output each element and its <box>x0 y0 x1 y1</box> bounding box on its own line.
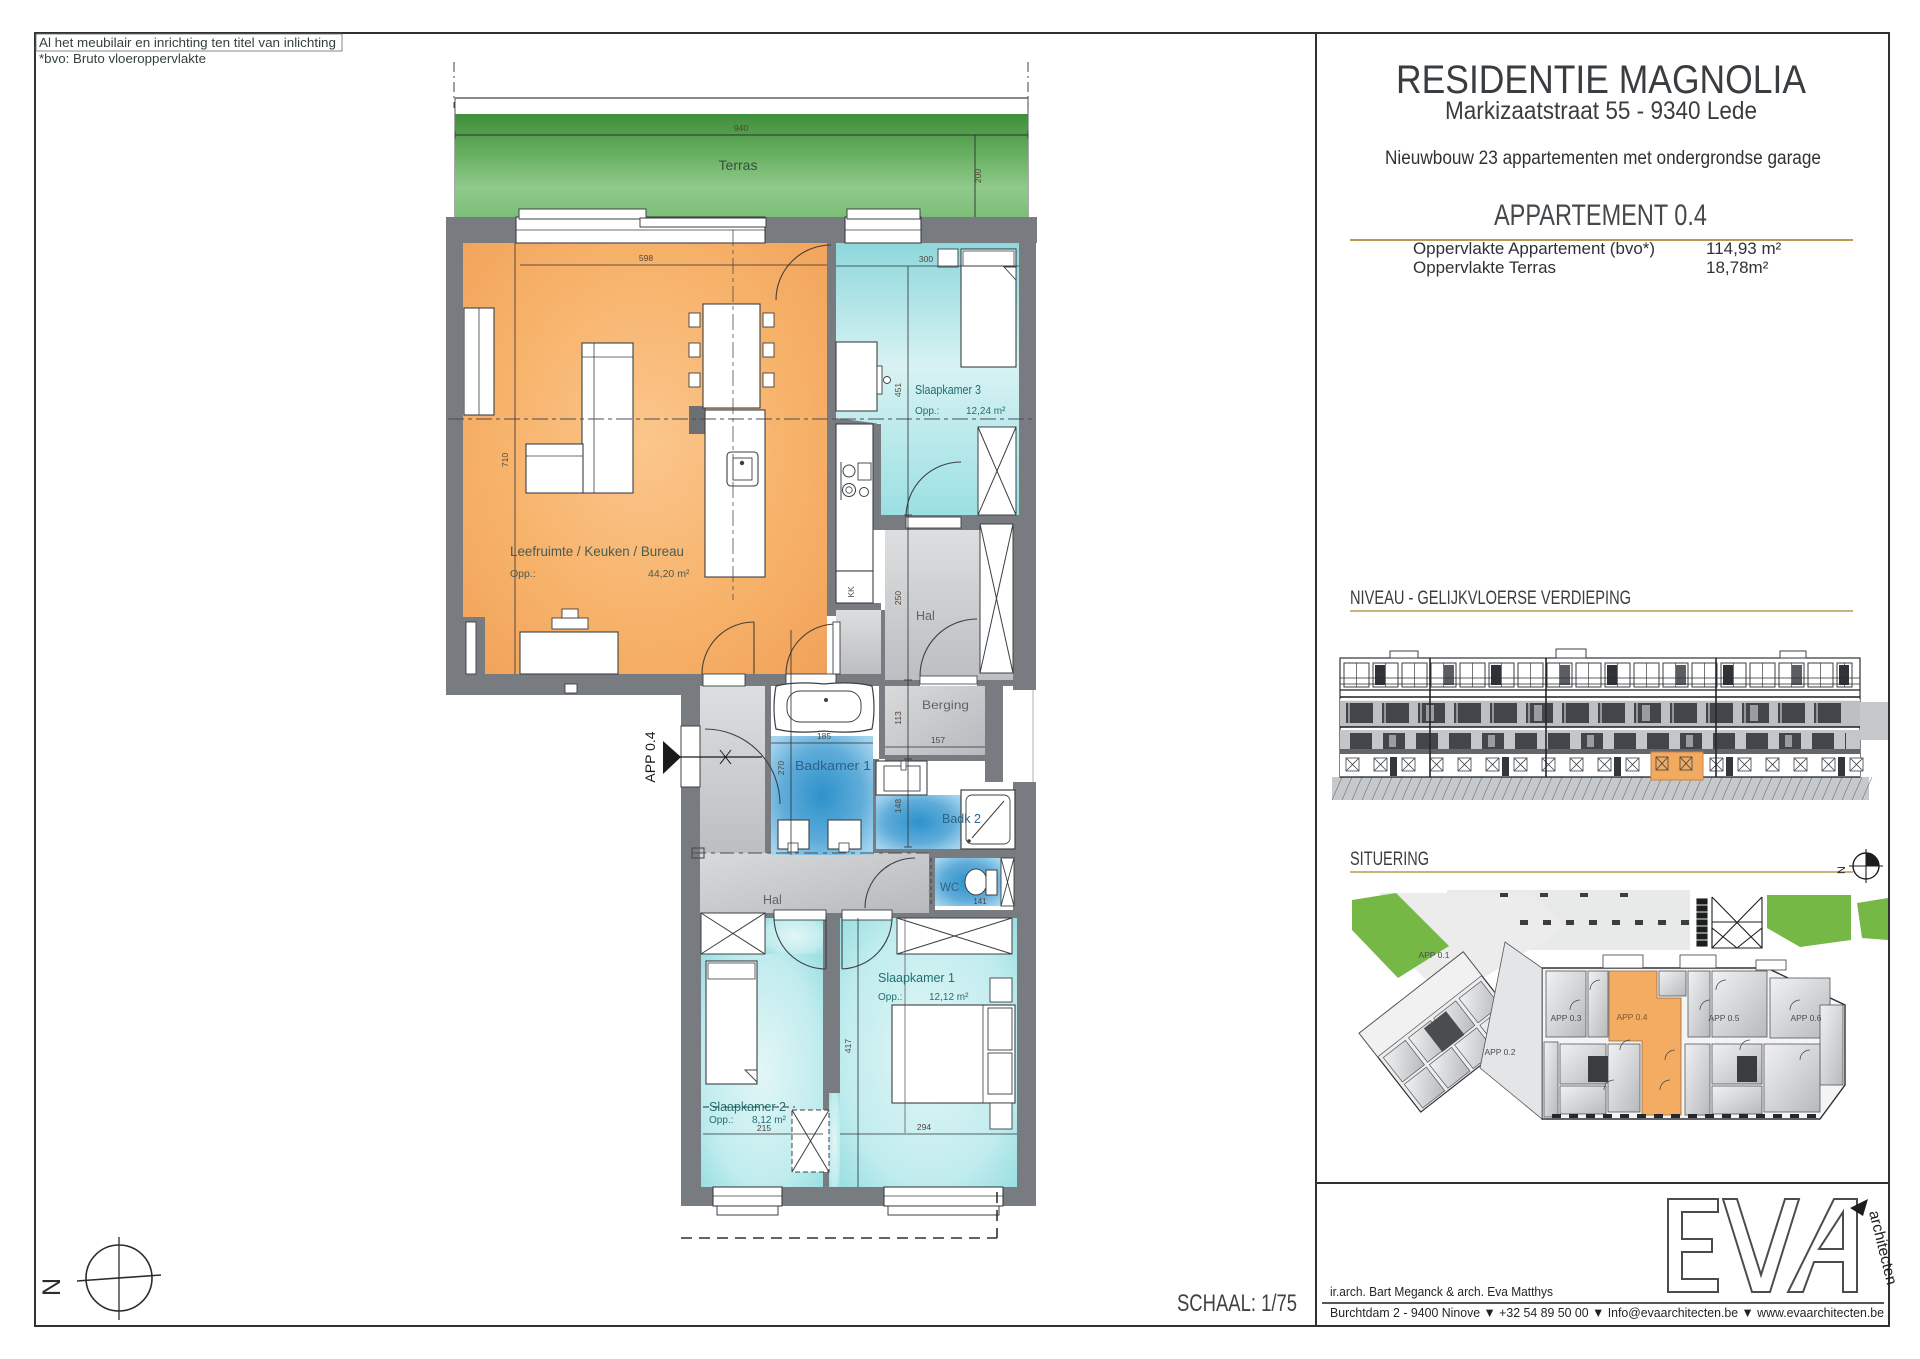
svg-text:114,93 m²: 114,93 m² <box>1706 239 1782 258</box>
svg-text:Nieuwbouw 23 appartementen met: Nieuwbouw 23 appartementen met ondergron… <box>1385 148 1821 169</box>
svg-text:12,24 m²: 12,24 m² <box>966 406 1006 417</box>
svg-text:200: 200 <box>973 169 983 183</box>
svg-text:598: 598 <box>639 253 653 263</box>
svg-text:148: 148 <box>893 799 903 813</box>
svg-text:SCHAAL: 1/75: SCHAAL: 1/75 <box>1177 1290 1297 1317</box>
svg-text:APP 0.6: APP 0.6 <box>1790 1013 1821 1023</box>
svg-text:Leefruimte / Keuken / Bureau: Leefruimte / Keuken / Bureau <box>510 543 684 559</box>
svg-text:250: 250 <box>893 591 903 605</box>
svg-text:Terras: Terras <box>719 157 758 173</box>
svg-text:Al het meubilair en inrichting: Al het meubilair en inrichting ten titel… <box>39 36 336 50</box>
svg-text:113: 113 <box>893 711 903 725</box>
svg-text:451: 451 <box>893 383 903 397</box>
svg-text:N: N <box>38 1278 66 1296</box>
svg-text:APP 0.4: APP 0.4 <box>1616 1012 1647 1022</box>
svg-text:ir.arch. Bart Meganck & arch.: ir.arch. Bart Meganck & arch. Eva Matthy… <box>1330 1284 1553 1299</box>
svg-text:710: 710 <box>500 453 510 467</box>
svg-text:Oppervlakte Terras: Oppervlakte Terras <box>1413 258 1556 277</box>
svg-text:Burchtdam 2 - 9400 Ninove ▼ +3: Burchtdam 2 - 9400 Ninove ▼ +32 54 89 50… <box>1330 1305 1884 1320</box>
svg-text:Slaapkamer 3: Slaapkamer 3 <box>915 382 981 397</box>
svg-text:8,12 m²: 8,12 m² <box>752 1115 787 1126</box>
svg-text:Badkamer 1: Badkamer 1 <box>795 758 871 773</box>
svg-text:Slaapkamer 1: Slaapkamer 1 <box>878 970 955 985</box>
svg-text:Opp.:: Opp.: <box>510 568 536 580</box>
svg-text:Opp.:: Opp.: <box>878 992 902 1003</box>
svg-text:141: 141 <box>973 897 987 906</box>
svg-text:Opp.:: Opp.: <box>915 406 939 417</box>
svg-text:N: N <box>1836 866 1848 874</box>
svg-text:300: 300 <box>919 254 933 264</box>
svg-text:*bvo: Bruto vloeroppervlakte: *bvo: Bruto vloeroppervlakte <box>39 52 206 66</box>
svg-text:294: 294 <box>917 1122 931 1132</box>
svg-text:APP 0.2: APP 0.2 <box>1484 1047 1515 1057</box>
svg-text:Markizaatstraat 55 - 9340 Lede: Markizaatstraat 55 - 9340 Lede <box>1445 97 1757 125</box>
svg-text:Opp.:: Opp.: <box>709 1115 733 1126</box>
svg-text:12,12 m²: 12,12 m² <box>929 992 969 1003</box>
svg-text:Badk 2: Badk 2 <box>942 812 981 826</box>
svg-text:APPARTEMENT 0.4: APPARTEMENT 0.4 <box>1494 199 1707 232</box>
svg-text:Hal: Hal <box>763 893 782 907</box>
svg-text:940: 940 <box>734 123 748 133</box>
svg-text:APP 0.4: APP 0.4 <box>642 731 658 782</box>
svg-text:Berging: Berging <box>922 698 969 712</box>
svg-text:NIVEAU - GELIJKVLOERSE VERDIEP: NIVEAU - GELIJKVLOERSE VERDIEPING <box>1350 588 1631 609</box>
svg-text:APP 0.1: APP 0.1 <box>1418 950 1449 960</box>
svg-text:44,20 m²: 44,20 m² <box>648 568 690 580</box>
svg-text:KK: KK <box>846 586 856 598</box>
svg-text:WC: WC <box>940 882 959 894</box>
svg-text:157: 157 <box>931 735 945 745</box>
svg-text:APP 0.3: APP 0.3 <box>1550 1013 1581 1023</box>
svg-text:417: 417 <box>843 1039 853 1053</box>
svg-text:185: 185 <box>817 731 831 741</box>
svg-text:Oppervlakte Appartement (bvo*): Oppervlakte Appartement (bvo*) <box>1413 239 1655 258</box>
svg-text:APP 0.5: APP 0.5 <box>1708 1013 1739 1023</box>
svg-text:Hal: Hal <box>916 609 935 623</box>
svg-text:270: 270 <box>776 761 786 775</box>
svg-text:18,78m²: 18,78m² <box>1706 258 1769 277</box>
svg-text:SITUERING: SITUERING <box>1350 849 1429 870</box>
svg-text:RESIDENTIE MAGNOLIA: RESIDENTIE MAGNOLIA <box>1396 58 1806 102</box>
